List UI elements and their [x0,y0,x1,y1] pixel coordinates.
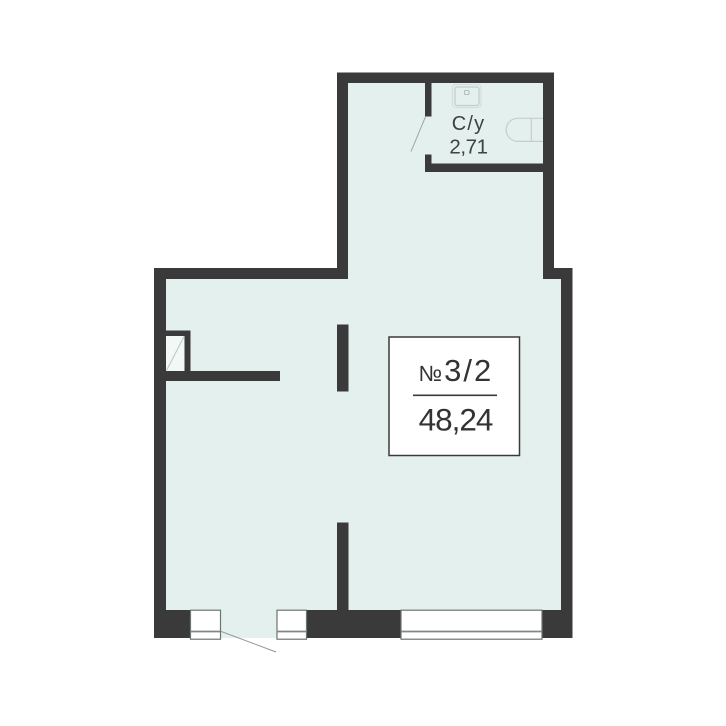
svg-text:48,24: 48,24 [419,402,493,438]
svg-text:2,71: 2,71 [449,136,487,159]
svg-text:С/у: С/у [452,113,486,135]
